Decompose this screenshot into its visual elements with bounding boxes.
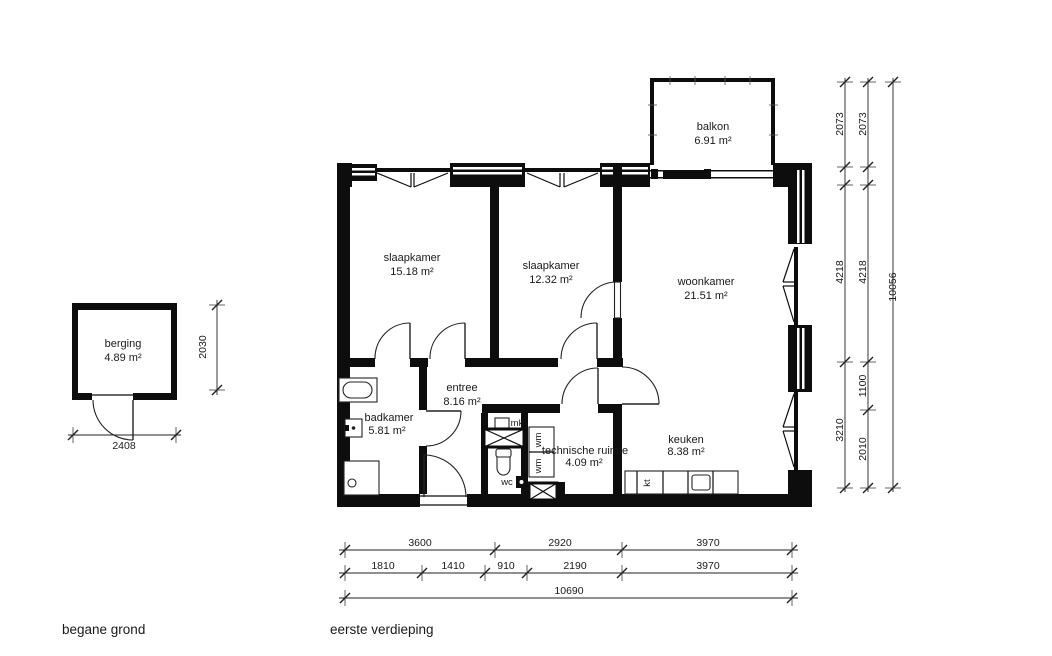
room-label-berging: berging bbox=[105, 338, 142, 350]
caption-begane-grond: begane grond bbox=[62, 622, 145, 637]
window-right-2 bbox=[788, 325, 812, 392]
room-area-badkamer: 5.81 m² bbox=[368, 425, 406, 437]
window-right-vband-1 bbox=[794, 247, 798, 325]
window-right-1 bbox=[788, 163, 812, 244]
dim-bottom-1-1: 2920 bbox=[548, 537, 572, 549]
caption-eerste-verdieping: eerste verdieping bbox=[330, 622, 434, 637]
room-label-slaapkamer-1: slaapkamer bbox=[384, 252, 441, 264]
room-area-technische-ruimte: 4.09 m² bbox=[565, 457, 603, 469]
fixture-label-kt: kt bbox=[642, 479, 653, 487]
dim-right-a-2: 3210 bbox=[834, 418, 846, 442]
window-right-vband-2 bbox=[794, 392, 798, 470]
room-label-woonkamer: woonkamer bbox=[677, 276, 735, 288]
dim-bottom-total: 10690 bbox=[554, 585, 583, 597]
door-arc-badkamer bbox=[426, 411, 461, 446]
room-area-entree: 8.16 m² bbox=[443, 396, 481, 408]
dim-bottom-2-3: 2190 bbox=[563, 560, 587, 572]
dim-right-b-1: 4218 bbox=[857, 260, 869, 284]
room-area-slaapkamer-1: 15.18 m² bbox=[390, 266, 434, 278]
shower bbox=[344, 461, 379, 495]
berging-plan: berging 4.89 m² bbox=[72, 303, 177, 440]
room-area-woonkamer: 21.51 m² bbox=[684, 290, 728, 302]
dim-bottom-2-4: 3970 bbox=[696, 560, 720, 572]
fixture-label-wm-bottom: wm bbox=[533, 459, 544, 475]
dim-right-a-1: 4218 bbox=[834, 260, 846, 284]
door-arc-technische-ruimte bbox=[562, 368, 598, 404]
dim-bottom-2-0: 1810 bbox=[371, 560, 395, 572]
room-area-keuken: 8.38 m² bbox=[667, 446, 705, 458]
berging-door-arc bbox=[93, 400, 133, 440]
dim-right-a-0: 2073 bbox=[834, 112, 846, 136]
dim-right-total: 10056 bbox=[887, 272, 899, 301]
toilet bbox=[496, 449, 511, 457]
door-arc-entrance bbox=[424, 455, 466, 497]
room-label-wc: wc bbox=[500, 477, 513, 488]
fixture-label-wm-top: wm bbox=[533, 433, 544, 449]
dimension-lines: 2030 2408 2073 4218 3210 2073 4218 1100 … bbox=[68, 77, 901, 606]
room-area-balkon: 6.91 m² bbox=[694, 135, 732, 147]
floorplan-drawing: berging 4.89 m² bbox=[0, 0, 1052, 656]
room-area-slaapkamer-2: 12.32 m² bbox=[529, 274, 573, 286]
floorplan-sheet: berging 4.89 m² bbox=[0, 0, 1052, 656]
dim-bottom-1-2: 3970 bbox=[696, 537, 720, 549]
door-arc-slaapkamer-1 bbox=[430, 323, 465, 359]
fixture-label-mk: mk bbox=[511, 418, 524, 429]
room-label-balkon: balkon bbox=[697, 121, 729, 133]
dim-right-b-2: 1100 bbox=[857, 375, 869, 398]
window-top-vband-2 bbox=[525, 168, 600, 172]
meterkast bbox=[495, 418, 509, 428]
door-arc-woonkamer bbox=[622, 367, 659, 404]
room-label-entree: entree bbox=[446, 382, 477, 394]
dim-berging-height: 2030 bbox=[197, 335, 209, 359]
room-label-slaapkamer-2: slaapkamer bbox=[523, 260, 580, 272]
window-top-vband-1 bbox=[375, 168, 450, 172]
balcony-door bbox=[663, 170, 707, 179]
dim-right-b-0: 2073 bbox=[857, 112, 869, 136]
room-label-keuken: keuken bbox=[668, 434, 703, 446]
door-arc-badkamer-slaapkamer bbox=[375, 323, 410, 359]
room-label-technische-ruimte: technische ruimte bbox=[542, 445, 628, 457]
room-area-berging: 4.89 m² bbox=[104, 352, 142, 364]
kitchen-sink bbox=[692, 475, 710, 490]
dim-bottom-2-1: 1410 bbox=[441, 560, 465, 572]
dim-bottom-1-0: 3600 bbox=[408, 537, 432, 549]
room-label-badkamer: badkamer bbox=[365, 412, 414, 424]
dim-berging-width: 2408 bbox=[112, 440, 136, 452]
window-top-1 bbox=[350, 164, 377, 181]
door-arc-woonkamer-slaapkamer-2 bbox=[581, 282, 617, 318]
door-arc-slaapkamer-2 bbox=[561, 323, 597, 359]
dim-bottom-2-2: 910 bbox=[497, 560, 515, 572]
dim-right-b-3: 2010 bbox=[857, 437, 869, 461]
